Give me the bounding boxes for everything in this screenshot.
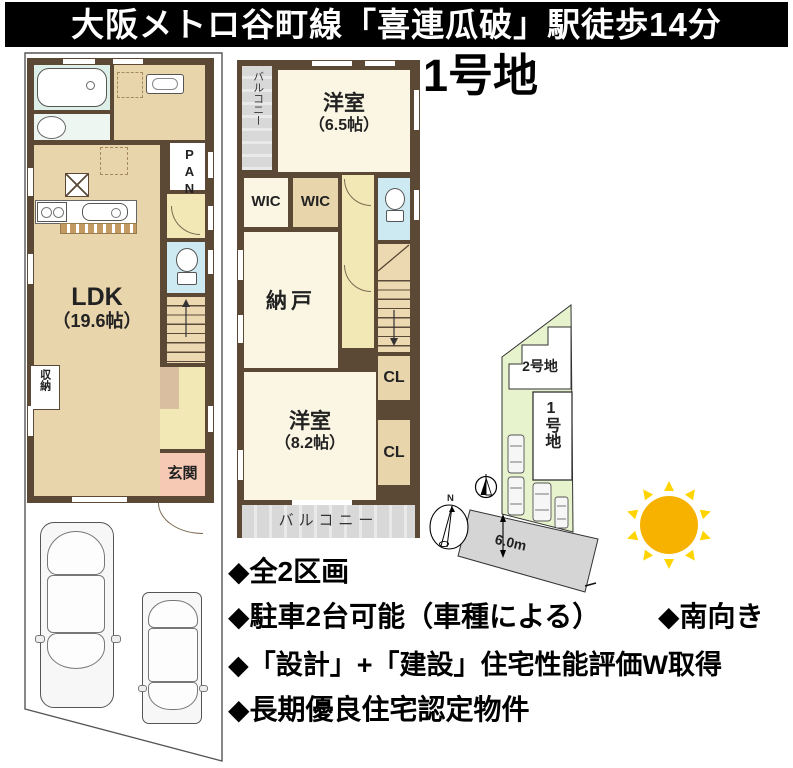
window-marker <box>208 206 213 230</box>
north-label: N <box>447 494 454 505</box>
balcony-top-label: バルコニー <box>251 71 264 126</box>
toilet-2f <box>378 178 410 240</box>
toilet-bowl-icon <box>176 248 198 272</box>
car-windshield <box>148 682 198 710</box>
wic-1: WIC <box>244 178 288 227</box>
parked-car-icon <box>508 477 524 515</box>
bedroom-8-2-size: （8.2帖） <box>244 435 376 453</box>
window-marker <box>28 168 33 196</box>
window-marker <box>365 61 395 66</box>
kitchen-sink-icon <box>82 203 128 221</box>
window-marker <box>238 450 243 480</box>
utility-area <box>114 65 205 140</box>
bath-drain-icon <box>86 81 95 90</box>
toilet-tank-icon <box>386 210 404 222</box>
closet-2: CL <box>378 420 410 485</box>
bedroom-6-5-label: 洋室 <box>278 92 410 116</box>
bathroom <box>34 65 110 110</box>
door-arc-icon <box>344 179 371 206</box>
feature-performance: ◆「設計」+「建設」住宅性能評価W取得 <box>228 643 722 682</box>
window-marker <box>292 500 352 505</box>
road-shape <box>458 510 598 592</box>
car-rear-window <box>47 531 105 575</box>
feature-parking: ◆駐車2台可能（車種による） <box>228 595 600 635</box>
bedroom-6-5: 洋室 （6.5帖） <box>278 70 410 172</box>
car-mirror <box>199 685 208 692</box>
washbasin-oval-icon <box>37 116 66 139</box>
burner-icon <box>53 207 64 218</box>
storeroom-label: 納戸 <box>244 290 338 314</box>
window-marker <box>414 90 419 130</box>
car-icon <box>142 592 202 724</box>
closet-1: CL <box>378 356 410 400</box>
car-icon <box>40 522 114 708</box>
stairs-1f <box>167 297 205 363</box>
floor-hatch-icon <box>117 72 143 98</box>
wic-2-label: WIC <box>293 193 338 210</box>
storeroom: 納戸 <box>244 232 338 368</box>
stove-icon <box>37 202 67 222</box>
bedroom-8-2: 洋室 （8.2帖） <box>244 372 376 500</box>
flyer-canvas: 大阪メトロ谷町線「喜連瓜破」駅徒歩14分 <box>0 0 793 768</box>
window-marker <box>208 152 213 178</box>
balcony-bottom-label: バルコニー <box>242 512 415 529</box>
ldk-room: LDK （19.6帖） <box>34 145 160 496</box>
floor-hatch-icon <box>100 147 128 175</box>
window-marker <box>238 250 243 280</box>
storage-label: 収納 <box>38 369 51 391</box>
stair-landing-icon <box>378 244 410 272</box>
feature-certified: ◆長期優良住宅認定物件 <box>228 688 530 728</box>
faucet-icon <box>111 208 121 218</box>
lot1-label: 1号地 <box>541 400 559 478</box>
stairs-up-arrow-icon <box>180 299 192 339</box>
car-roof <box>47 575 105 633</box>
sun-icon <box>623 478 715 570</box>
lot-title: 1号地 <box>423 50 538 102</box>
hatch-box-icon <box>65 173 89 197</box>
ldk-size-label: （19.6帖） <box>34 311 160 332</box>
toilet-tank-icon <box>177 272 197 285</box>
pantry: PAN <box>170 143 205 190</box>
genkan: 玄関 <box>160 453 205 496</box>
site-plan <box>425 295 630 625</box>
window-marker <box>238 315 243 343</box>
storage-closet: 収納 <box>30 365 60 410</box>
washroom <box>34 114 110 140</box>
wic-1-label: WIC <box>244 193 288 210</box>
car-mirror <box>111 635 121 643</box>
closet-2-label: CL <box>378 444 410 462</box>
toilet-bowl-icon <box>385 188 405 210</box>
car-rear-window <box>148 600 198 628</box>
bedroom-8-2-label: 洋室 <box>244 410 376 434</box>
hall-2f <box>342 175 374 348</box>
balcony-top: バルコニー <box>242 66 272 170</box>
entry-hall-1f <box>160 367 205 449</box>
balcony-bottom: バルコニー <box>242 505 415 538</box>
door-arc-icon <box>171 206 200 235</box>
window-marker <box>63 59 95 64</box>
floorplan-1f: LDK （19.6帖） 収納 PAN 玄関 <box>27 58 214 503</box>
step-icon <box>160 367 179 409</box>
parked-car-icon <box>555 497 568 528</box>
compass-icon <box>476 474 497 498</box>
sink-icon <box>146 74 184 94</box>
car-mirror <box>138 685 147 692</box>
lot2-label: 2号地 <box>512 358 568 374</box>
parked-car-icon <box>533 483 551 521</box>
bedroom-6-5-size: （6.5帖） <box>278 117 410 135</box>
genkan-label: 玄関 <box>160 465 205 482</box>
car-mirror <box>35 635 45 643</box>
counter-edge-icon <box>60 223 137 234</box>
north-arrow-icon <box>430 505 468 549</box>
wic-2: WIC <box>293 178 338 227</box>
window-marker <box>208 406 213 432</box>
kitchen-counter <box>35 200 137 224</box>
window-marker <box>113 59 143 64</box>
bathtub-icon <box>37 68 107 107</box>
stairs-2f <box>378 244 410 352</box>
window-marker <box>414 190 419 220</box>
floorplan-2f: バルコニー 洋室 （6.5帖） WIC WIC <box>237 60 420 538</box>
window-marker <box>28 406 33 436</box>
sink-basin-icon <box>152 78 178 90</box>
parked-car-icon <box>508 435 524 473</box>
stairs-down-arrow-icon <box>388 308 400 348</box>
burner-icon <box>41 207 52 218</box>
car-windshield <box>47 633 105 669</box>
door-arc-icon <box>344 265 371 292</box>
window-marker <box>72 497 127 502</box>
pantry-label: PAN <box>181 147 196 198</box>
feature-lots: ◆全2区画 <box>228 550 349 590</box>
toilet-1f <box>167 242 205 293</box>
window-marker <box>28 254 33 284</box>
closet-1-label: CL <box>378 369 410 387</box>
window-marker <box>208 250 213 274</box>
window-marker <box>312 61 352 66</box>
ldk-label: LDK <box>34 283 160 312</box>
car-roof <box>148 628 198 682</box>
hall-1f <box>167 194 205 238</box>
feature-south-facing: ◆南向き <box>658 595 764 635</box>
